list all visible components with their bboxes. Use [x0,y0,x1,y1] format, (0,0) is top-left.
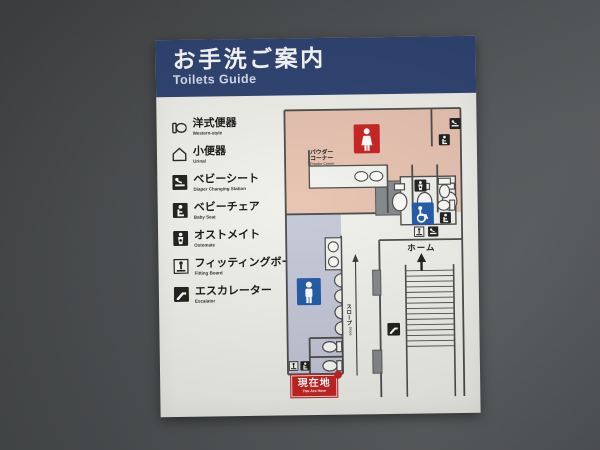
sink [370,171,383,181]
legend-item-western-style: 洋式便器Western-style [171,116,291,146]
baby-seat-icon [439,134,450,145]
sink [355,172,368,182]
pillar [373,350,382,373]
page-title-en: Toilets Guide [173,69,476,87]
powder-corner-label: パウダー コーナー Powder Corner [310,149,364,167]
sink [328,242,338,252]
legend: 洋式便器Western-style 小便器Urinal ベビーシートDiaper… [171,116,294,314]
diaper-changing-station-icon [428,226,438,236]
you-are-here-en: You Are Here [292,389,336,394]
diaper-changing-station-icon [172,175,187,190]
sink [328,257,338,267]
mens-toilet-sign [297,278,321,305]
legend-label-jp: 洋式便器 [192,117,236,130]
you-are-here-jp: 現在地 [292,378,336,390]
toilets-guide-sign: お手洗ご案内 Toilets Guide 洋式便器Western-style [155,36,480,417]
legend-label-en: Baby Seat [194,213,260,219]
ostomate-icon [414,179,426,191]
slope-label: スロープ Slope [344,304,352,336]
diaper-changing-station-icon [450,118,461,129]
you-are-here-badge: 現在地 You Are Here [291,375,337,397]
baby-seat-icon [300,361,309,370]
fitting-board-icon [289,362,298,371]
legend-item-ostomate: オストメイトOstomate [173,228,293,258]
legend-label-jp: ベビーチェア [194,201,260,215]
multifunction-toilet [438,200,455,210]
legend-label-jp: ベビーシート [193,173,259,187]
legend-item-baby-seat: ベビーチェアBaby Seat [173,200,293,230]
powder-corner-counter [309,165,387,188]
legend-label-en: Escalator [195,297,272,303]
stairs [406,264,456,397]
legend-label-en: Ostomate [194,241,260,247]
page-title: お手洗ご案内 [172,44,475,72]
escalator-icon [174,287,189,302]
legend-label-en: Urinal [193,158,226,164]
legend-item-fitting-board: フィッティングボードFitting Board [173,256,293,286]
urinal-icon [172,147,187,162]
baby-seat-icon [440,212,451,223]
photo-background: お手洗ご案内 Toilets Guide 洋式便器Western-style [0,0,600,450]
legend-label-en: Western-style [193,130,237,136]
fitting-board-icon [414,227,423,236]
mens-sink-counter [325,238,341,270]
legend-item-diaper-station: ベビーシートDiaper Changing Station [172,172,292,202]
escalator-icon [387,323,400,336]
you-are-here-dot [334,371,342,379]
western-toilet-icon [171,119,186,134]
slope-arrow [352,254,360,376]
slope-jp: スロープ [344,304,352,326]
platform-label: ホーム [391,241,451,254]
legend-item-escalator: エスカレーターEscalator [174,284,294,314]
legend-label-jp: オストメイト [194,229,260,243]
floor-plan-map: パウダー コーナー Powder Corner ホーム スロープ Slope 現… [282,106,472,405]
legend-item-urinal: 小便器Urinal [172,144,292,174]
fitting-board-icon [173,259,188,274]
platform-arrow [417,253,426,271]
sign-header: お手洗ご案内 Toilets Guide [155,36,476,97]
legend-label-jp: エスカレーター [195,285,272,299]
slope-en: Slope [344,327,352,336]
baby-seat-icon [173,203,188,218]
ostomate-icon [173,231,188,246]
powder-corner-en: Powder Corner [310,163,364,168]
wheelchair-sign [412,202,434,224]
ostomate-fixture [438,178,450,198]
pillar [373,270,381,295]
legend-label-en: Diaper Changing Station [193,185,259,191]
legend-label-jp: 小便器 [193,145,226,158]
